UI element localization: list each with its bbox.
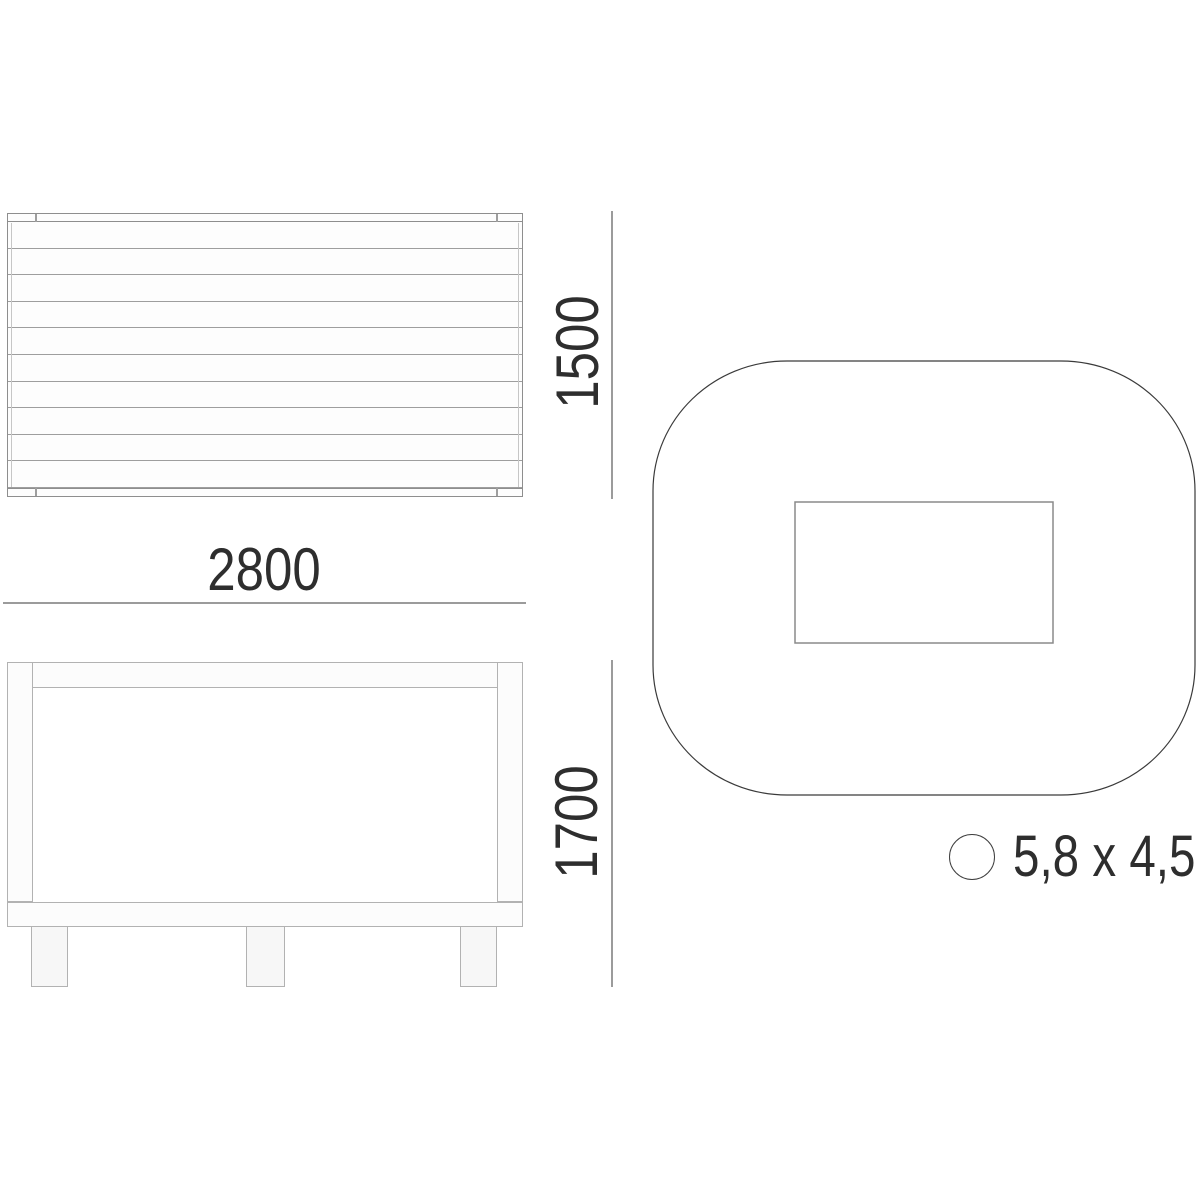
plan-view-base-rect [795, 502, 1053, 643]
footprint-size-label: 5,8 x 4,5 [1013, 828, 1195, 886]
top-view-slat [8, 355, 522, 382]
footprint-circle-icon [949, 834, 995, 880]
top-view-post-mark [35, 488, 37, 496]
dimension-label-1500: 1500 [548, 295, 608, 408]
plan-view [630, 345, 1200, 810]
front-view-post-left [7, 662, 33, 902]
top-view-side-rail-top [8, 214, 522, 222]
front-view-panel [32, 687, 498, 903]
front-view-rail-bottom [7, 902, 523, 927]
top-view-post-mark [35, 214, 37, 222]
top-view-slat [8, 222, 522, 249]
top-view-side-rail-bottom [8, 488, 522, 496]
front-view-post-right [497, 662, 523, 902]
front-view-leg [460, 926, 497, 987]
dimension-line-2800 [3, 602, 526, 604]
front-view-leg [246, 926, 285, 987]
top-view-slat [8, 249, 522, 276]
front-view-leg [31, 926, 68, 987]
dimension-label-2800: 2800 [207, 540, 320, 600]
top-view-end-rail-left [11, 223, 12, 487]
top-view-slat [8, 461, 522, 488]
top-view-slat [8, 302, 522, 329]
top-view-post-mark [496, 214, 498, 222]
front-view-rail-top [32, 662, 498, 688]
top-view [7, 213, 523, 497]
top-view-slat [8, 435, 522, 462]
top-view-slat [8, 408, 522, 435]
top-view-post-mark [496, 488, 498, 496]
dimension-line-1700 [611, 660, 613, 987]
dimension-label-1700: 1700 [547, 765, 607, 878]
technical-drawing-canvas: 1500 2800 1700 5,8 x 4,5 [0, 0, 1200, 1200]
top-view-slat [8, 328, 522, 355]
top-view-end-rail-right [518, 223, 519, 487]
dimension-line-1500 [611, 211, 613, 499]
top-view-slat [8, 275, 522, 302]
top-view-slat [8, 382, 522, 409]
